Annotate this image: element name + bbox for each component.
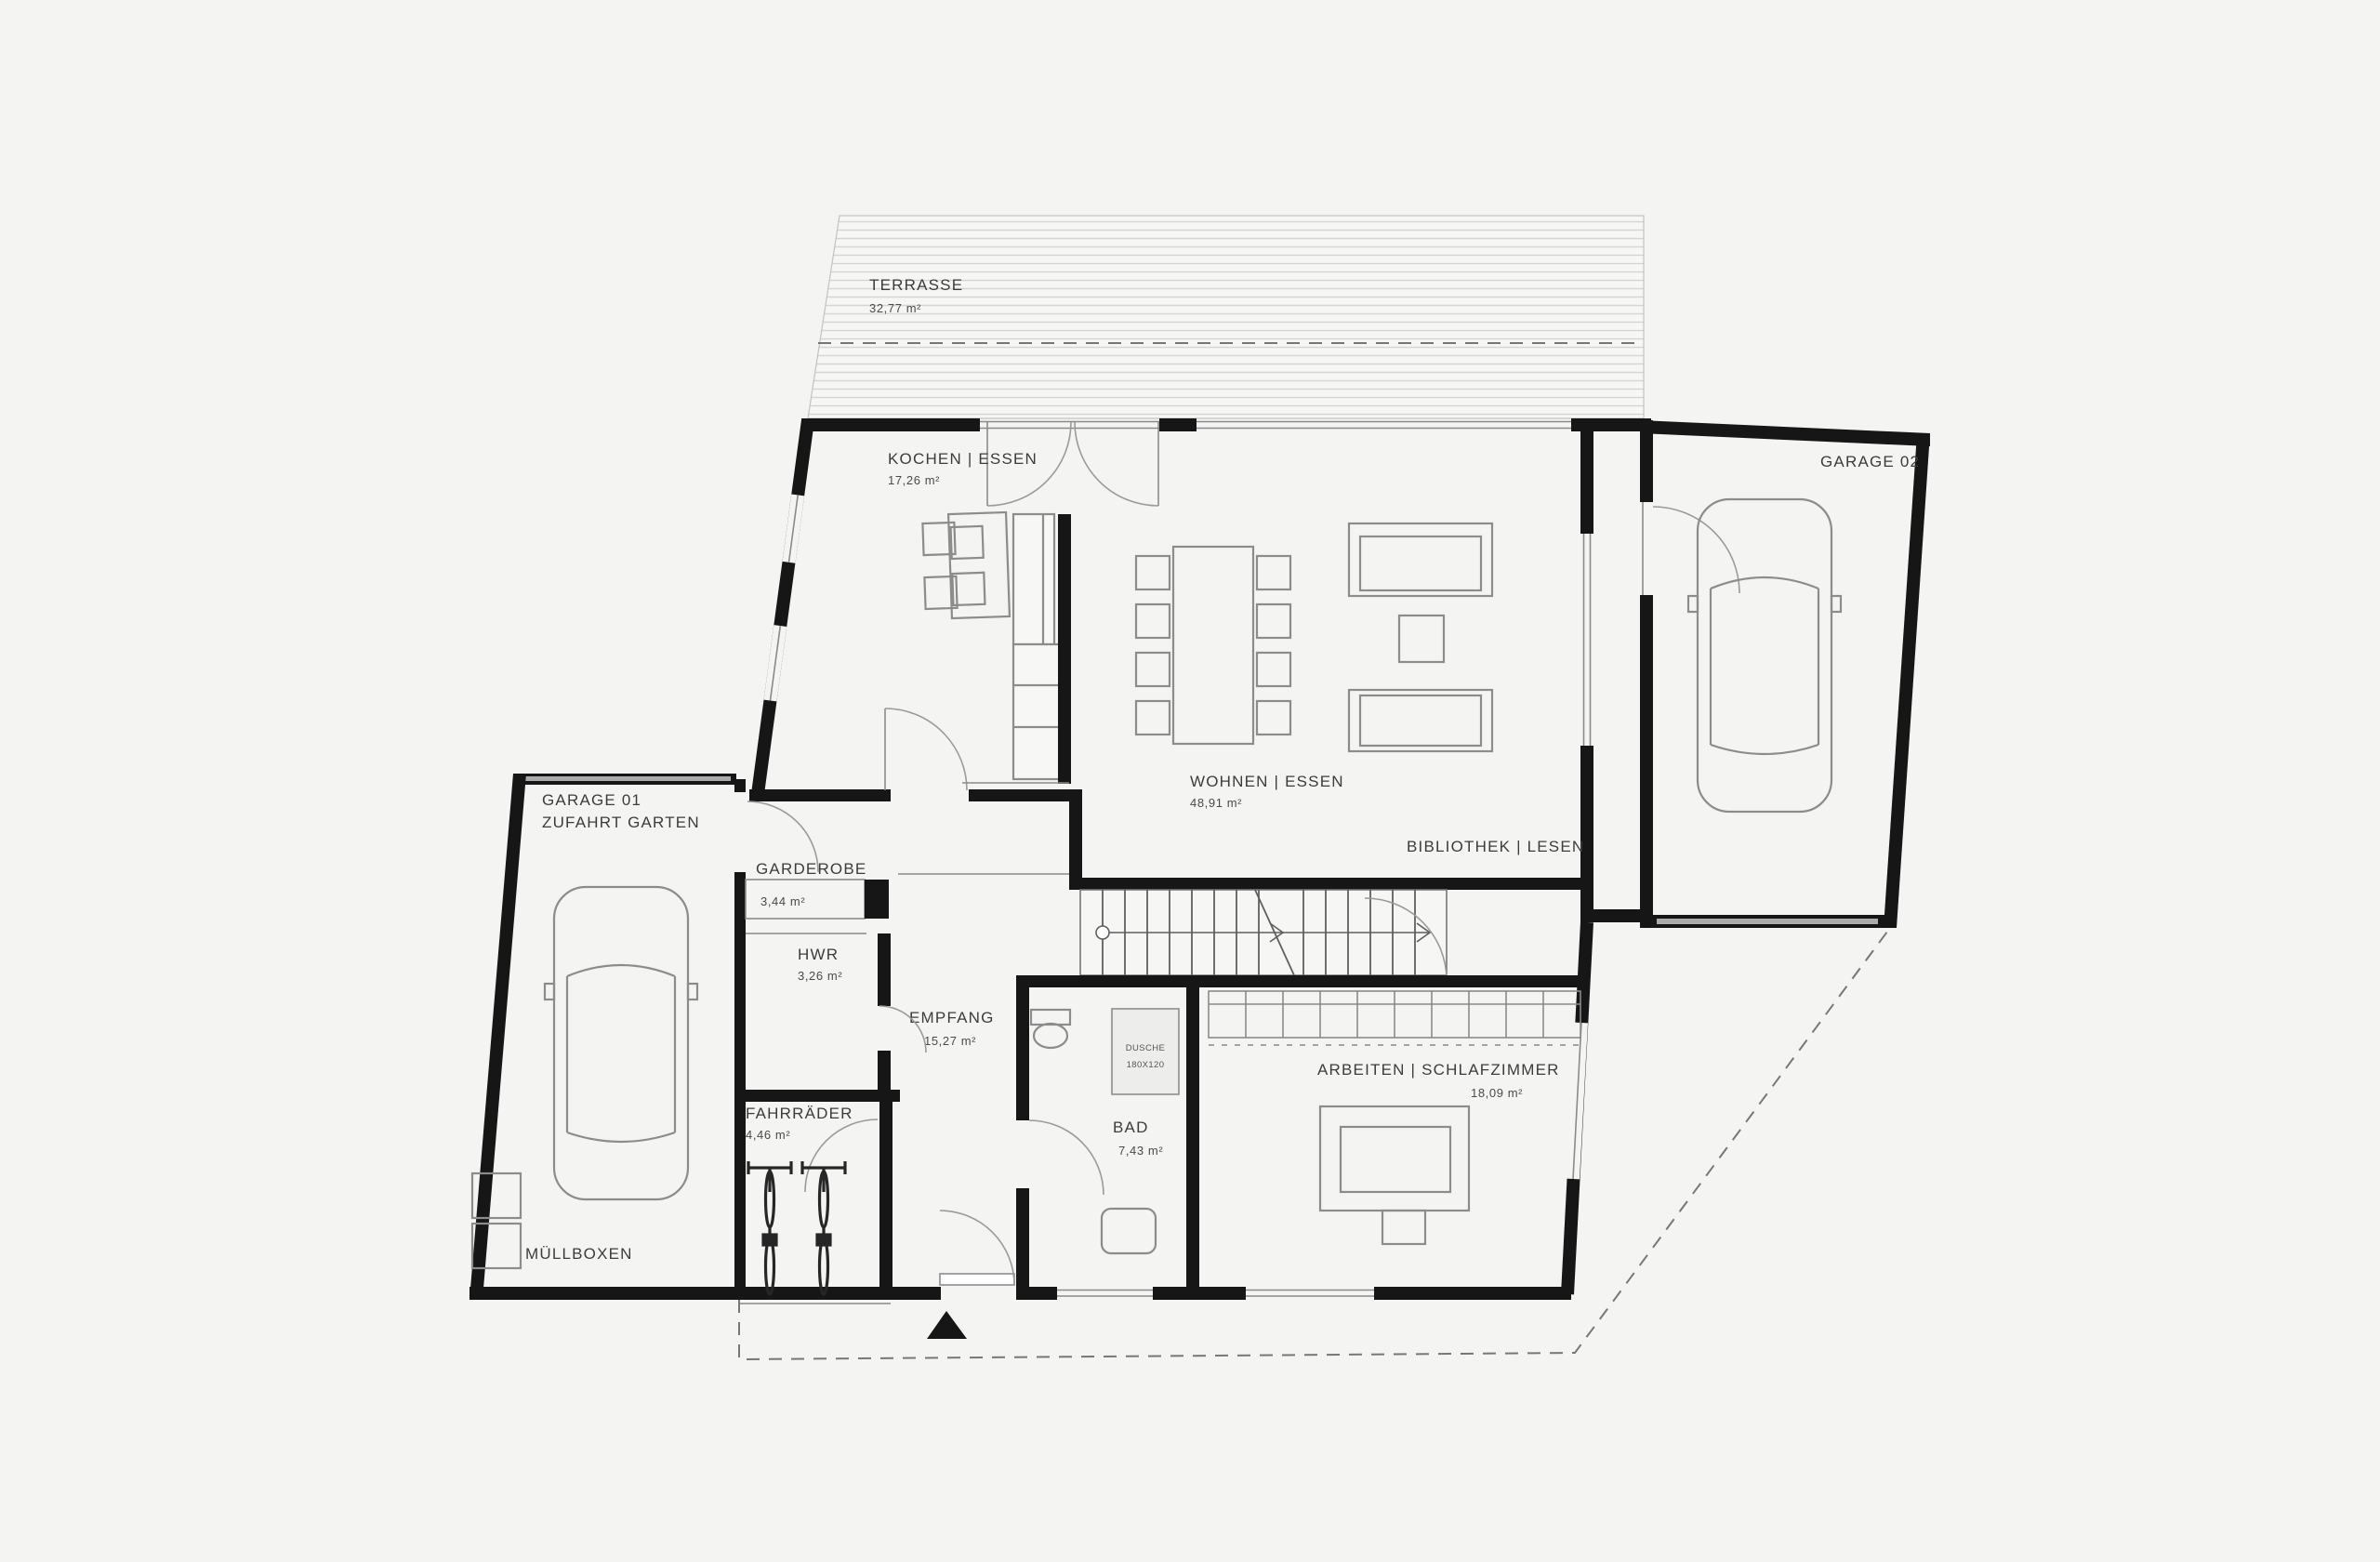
room-area-fahrraeder: 4,46 m² (746, 1128, 790, 1142)
bad: DUSCHE 180X120 BAD 7,43 m² (1016, 987, 1199, 1300)
kitchen: KOCHEN | ESSEN 17,26 m² (749, 422, 1158, 890)
room-label-empfang: EMPFANG (909, 1009, 995, 1026)
fahrraeder-room: FAHRRÄDER 4,46 m² (734, 1090, 900, 1294)
desk-icon (1320, 1106, 1469, 1211)
living-dining: WOHNEN | ESSEN 48,91 m² BIBLIOTHEK | LES… (898, 523, 1584, 874)
room-area-wohnen: 48,91 m² (1190, 796, 1242, 810)
room-label-arbeiten: ARBEITEN | SCHLAFZIMMER (1317, 1061, 1560, 1079)
entrance-arrow-icon (927, 1311, 967, 1339)
garage-02: GARAGE 02 (1640, 420, 1930, 928)
room-area-empfang: 15,27 m² (924, 1034, 976, 1048)
label-dusche: DUSCHE (1126, 1043, 1166, 1053)
hwr: HWR 3,26 m² (746, 933, 926, 1102)
room-area-bad: 7,43 m² (1118, 1144, 1163, 1158)
wc-icon (1102, 1209, 1156, 1253)
room-label-garage02: GARAGE 02 (1820, 453, 1920, 470)
label-dusche-dim: 180X120 (1127, 1060, 1165, 1070)
room-area-arbeiten: 18,09 m² (1471, 1086, 1523, 1100)
terrace: TERRASSE 32,77 m² (808, 216, 1644, 418)
arbeiten: ARBEITEN | SCHLAFZIMMER 18,09 m² (1209, 991, 1580, 1244)
room-sublabel-garage01: ZUFAHRT GARTEN (542, 814, 700, 831)
room-label-hwr: HWR (798, 946, 839, 963)
room-area-garderobe: 3,44 m² (760, 894, 805, 908)
entrance-door (940, 1211, 1014, 1285)
room-label-fahrraeder: FAHRRÄDER (746, 1105, 853, 1122)
room-label-bibliothek: BIBLIOTHEK | LESEN (1407, 838, 1584, 855)
stairs (1016, 878, 1590, 987)
garderobe: GARDEROBE 3,44 m² (746, 860, 889, 919)
floor-plan-svg: TERRASSE 32,77 m² (0, 0, 2380, 1562)
room-area-hwr: 3,26 m² (798, 969, 842, 983)
washbasin-icon (1031, 1010, 1070, 1025)
room-label-garage01: GARAGE 01 (542, 791, 641, 809)
room-area-terrasse: 32,77 m² (869, 301, 921, 315)
room-label-bad: BAD (1113, 1119, 1149, 1136)
label-muellboxen: MÜLLBOXEN (525, 1245, 633, 1263)
room-label-terrasse: TERRASSE (869, 276, 963, 294)
washbasin-bowl-icon (1034, 1024, 1067, 1048)
muellboxen: MÜLLBOXEN (472, 1173, 633, 1268)
desk-chair-icon (1382, 1211, 1425, 1244)
room-label-wohnen: WOHNEN | ESSEN (1190, 773, 1344, 790)
dusche: DUSCHE 180X120 (1112, 1009, 1179, 1094)
entry-hall: EMPFANG 15,27 m² GARDEROBE 3,44 m² HWR 3… (734, 801, 1014, 1294)
floor-plan-page: TERRASSE 32,77 m² (0, 0, 2380, 1562)
room-area-kochen: 17,26 m² (888, 473, 940, 487)
room-label-garderobe: GARDEROBE (756, 860, 866, 878)
room-label-kochen: KOCHEN | ESSEN (888, 450, 1038, 468)
garage-01: MÜLLBOXEN GARAGE 01 ZUFAHRT GARTEN (469, 774, 746, 1300)
